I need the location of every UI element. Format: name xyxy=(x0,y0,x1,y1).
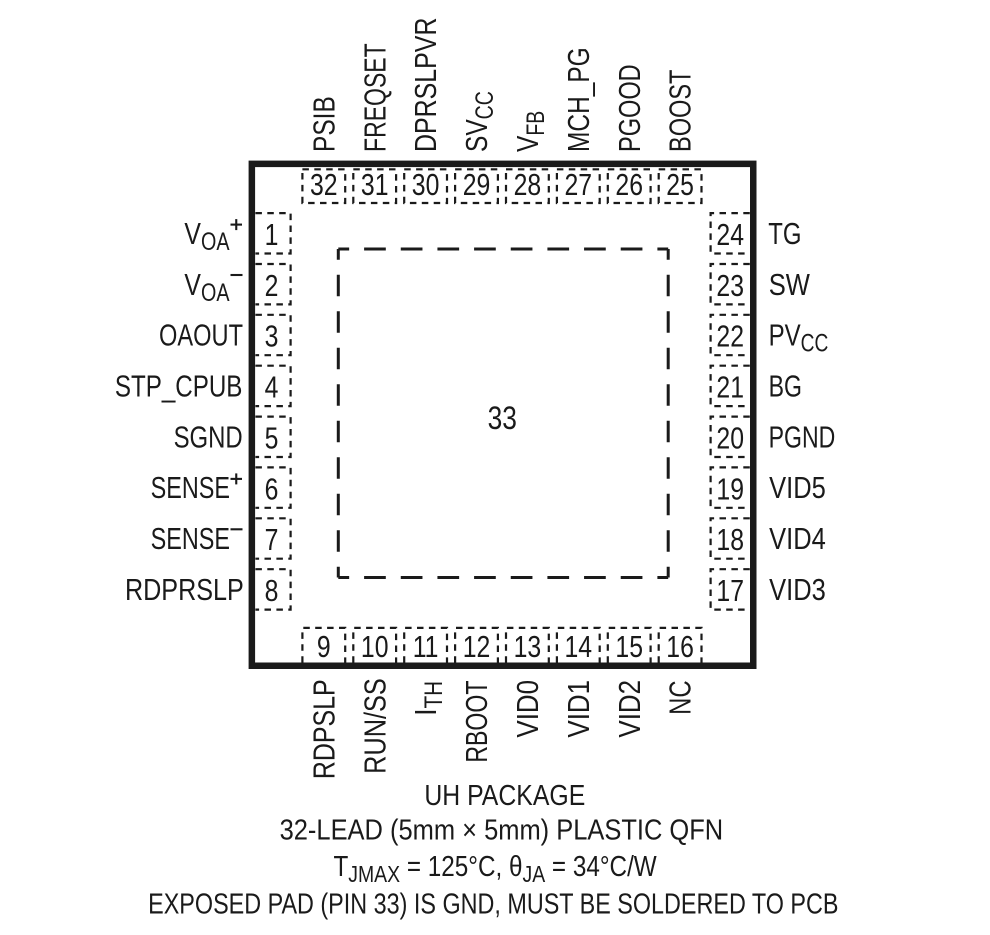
svg-text:NC: NC xyxy=(663,680,698,714)
svg-text:12: 12 xyxy=(463,630,491,664)
svg-text:32: 32 xyxy=(310,167,338,201)
svg-text:27: 27 xyxy=(565,167,593,201)
svg-text:TG: TG xyxy=(768,216,801,251)
svg-text:14: 14 xyxy=(565,630,593,664)
svg-text:5: 5 xyxy=(265,421,279,455)
svg-text:RBOOT: RBOOT xyxy=(459,680,494,762)
svg-text:8: 8 xyxy=(265,573,279,607)
svg-text:PSIB: PSIB xyxy=(307,96,341,152)
svg-text:15: 15 xyxy=(615,630,643,664)
svg-text:VID0: VID0 xyxy=(511,680,546,738)
svg-text:VID4: VID4 xyxy=(769,522,826,557)
svg-text:25: 25 xyxy=(666,167,694,201)
svg-text:UH PACKAGE: UH PACKAGE xyxy=(424,779,585,811)
svg-text:SW: SW xyxy=(769,268,810,303)
svg-text:2: 2 xyxy=(265,268,279,302)
svg-text:33: 33 xyxy=(488,401,517,437)
svg-text:BOOST: BOOST xyxy=(663,69,698,152)
svg-text:26: 26 xyxy=(615,167,643,201)
svg-text:OAOUT: OAOUT xyxy=(159,317,243,352)
svg-text:STP_CPUB: STP_CPUB xyxy=(115,369,243,404)
svg-text:SENSE: SENSE xyxy=(151,470,230,505)
svg-text:3: 3 xyxy=(265,319,279,353)
svg-text:VID5: VID5 xyxy=(769,471,826,506)
svg-text:20: 20 xyxy=(716,421,744,455)
svg-text:17: 17 xyxy=(716,573,744,607)
svg-text:11: 11 xyxy=(413,630,439,664)
svg-text:6: 6 xyxy=(265,472,279,506)
svg-text:30: 30 xyxy=(412,167,440,201)
svg-text:4: 4 xyxy=(265,370,279,404)
svg-text:PGOOD: PGOOD xyxy=(612,64,647,152)
svg-text:21: 21 xyxy=(716,370,744,404)
svg-text:VID2: VID2 xyxy=(613,680,648,738)
svg-text:DPRSLPVR: DPRSLPVR xyxy=(409,18,443,152)
svg-text:RDPSLP: RDPSLP xyxy=(307,679,341,779)
svg-text:32-LEAD (5mm × 5mm) PLASTIC QF: 32-LEAD (5mm × 5mm) PLASTIC QFN xyxy=(280,814,724,846)
svg-text:SENSE: SENSE xyxy=(151,521,230,556)
svg-text:EXPOSED PAD (PIN 33) IS GND, M: EXPOSED PAD (PIN 33) IS GND, MUST BE SOL… xyxy=(148,887,838,920)
svg-text:VID3: VID3 xyxy=(769,573,826,608)
svg-text:24: 24 xyxy=(716,217,744,251)
svg-text:PGND: PGND xyxy=(769,419,836,454)
svg-text:BG: BG xyxy=(769,368,802,403)
svg-text:7: 7 xyxy=(265,523,279,557)
svg-text:FREQSET: FREQSET xyxy=(357,43,392,152)
svg-text:RUN/SS: RUN/SS xyxy=(357,678,392,774)
svg-text:22: 22 xyxy=(716,319,744,353)
svg-text:1: 1 xyxy=(265,217,279,251)
svg-text:MCH_PG: MCH_PG xyxy=(561,47,595,152)
svg-text:SGND: SGND xyxy=(174,419,243,454)
svg-text:31: 31 xyxy=(361,167,389,201)
svg-text:VID1: VID1 xyxy=(562,680,597,738)
svg-text:13: 13 xyxy=(514,630,542,664)
svg-text:16: 16 xyxy=(666,630,694,664)
svg-text:18: 18 xyxy=(716,523,744,557)
svg-text:29: 29 xyxy=(463,167,491,201)
svg-text:RDPRSLP: RDPRSLP xyxy=(125,571,244,606)
svg-text:23: 23 xyxy=(716,268,744,302)
svg-text:9: 9 xyxy=(317,630,331,664)
svg-text:10: 10 xyxy=(361,630,389,664)
svg-text:28: 28 xyxy=(514,167,542,201)
svg-text:19: 19 xyxy=(716,472,744,506)
